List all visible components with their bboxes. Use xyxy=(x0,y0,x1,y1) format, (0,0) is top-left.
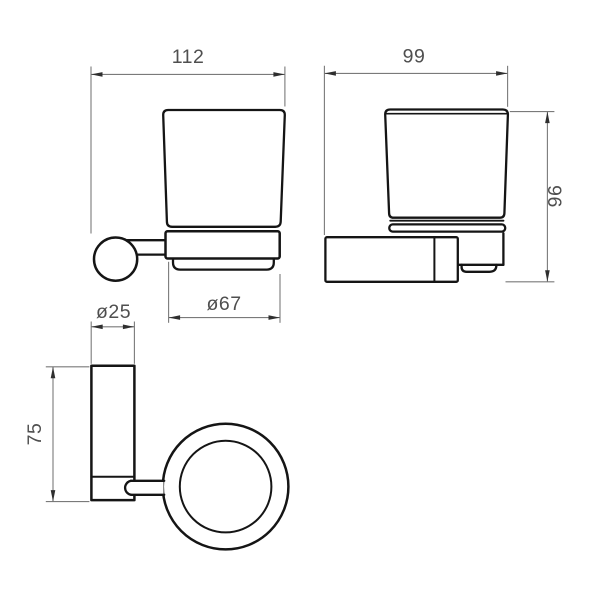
dim-side-depth-label: 99 xyxy=(403,46,426,68)
arrow-head xyxy=(91,72,103,77)
dimension-post-height: 75 xyxy=(24,367,89,502)
arrow-head xyxy=(51,367,56,379)
arrow-head xyxy=(545,270,550,282)
dim-post-diameter-label: ø25 xyxy=(96,301,131,323)
ring-outer-circle xyxy=(163,424,289,550)
arrow-head xyxy=(91,325,103,330)
arrow-head xyxy=(324,71,336,76)
top-view: ø25 75 xyxy=(24,301,288,549)
technical-drawing-page: 112 ø67 99 xyxy=(0,0,600,600)
dimension-side-depth: 99 xyxy=(324,46,507,236)
arrow-head xyxy=(273,72,285,77)
dimension-post-diameter: ø25 xyxy=(91,301,134,364)
wall-bracket-side xyxy=(325,237,457,282)
arrow-head xyxy=(123,325,134,330)
holder-band-side xyxy=(389,224,505,231)
dim-front-width-label: 112 xyxy=(172,46,205,68)
arrow-head xyxy=(169,315,181,320)
arrow-head xyxy=(545,112,550,124)
arrow-head xyxy=(496,71,508,76)
front-view: 112 ø67 xyxy=(91,46,285,323)
dimension-side-height: 96 xyxy=(506,112,567,282)
wall-rose-circle xyxy=(94,238,137,281)
glass-bottom-front xyxy=(173,259,274,270)
dimension-front-width: 112 xyxy=(91,46,285,234)
side-view: 99 96 xyxy=(324,46,566,282)
arrow-head xyxy=(51,490,56,502)
dim-glass-diameter-label: ø67 xyxy=(206,293,241,315)
holder-ring-front xyxy=(166,231,280,258)
dimension-glass-diameter: ø67 xyxy=(169,262,280,323)
arm-mask xyxy=(125,481,163,495)
dim-side-height-label: 96 xyxy=(545,185,567,208)
dim-post-height-label: 75 xyxy=(24,423,46,446)
tumbler-holder-drawing: 112 ø67 99 xyxy=(0,0,600,600)
glass-front-outline xyxy=(163,110,285,227)
wall-post-top xyxy=(91,366,134,500)
arrow-head xyxy=(269,315,281,320)
glass-side-outline xyxy=(385,110,508,218)
